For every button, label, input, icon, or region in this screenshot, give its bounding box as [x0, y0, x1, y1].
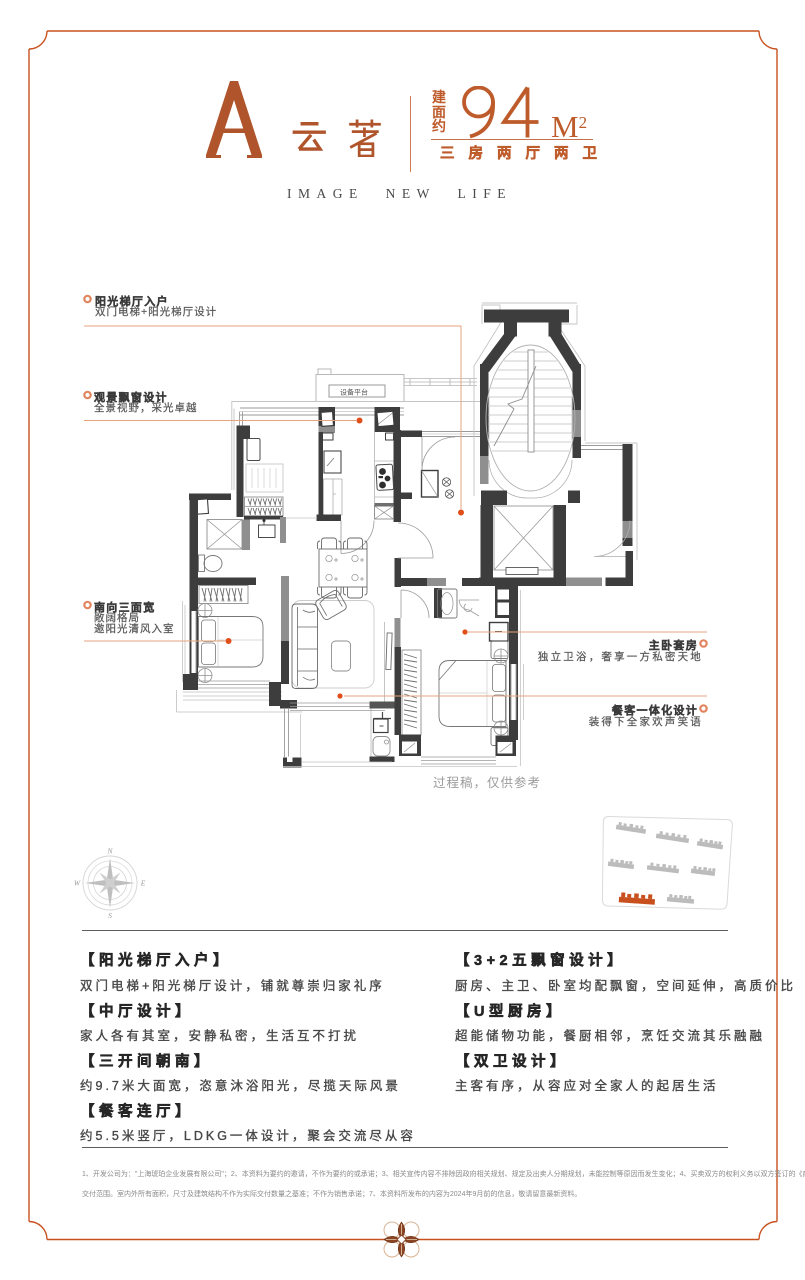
svg-text:N: N — [106, 847, 113, 856]
svg-text:设备平台: 设备平台 — [340, 388, 368, 397]
svg-text:E: E — [140, 879, 146, 888]
svg-text:W: W — [74, 879, 81, 888]
svg-text:S: S — [108, 911, 112, 920]
